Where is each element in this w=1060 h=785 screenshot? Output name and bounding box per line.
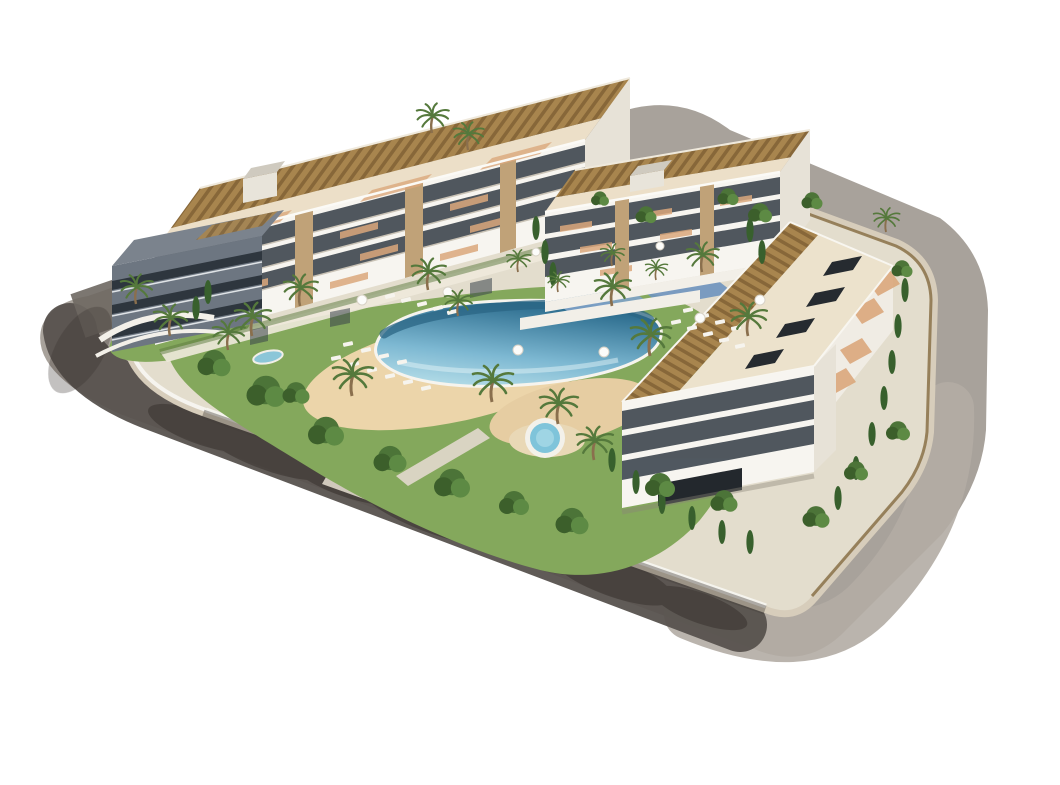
architectural-render <box>0 0 1060 785</box>
jacuzzi-water-highlight <box>536 429 554 447</box>
render-canvas <box>0 0 1060 785</box>
